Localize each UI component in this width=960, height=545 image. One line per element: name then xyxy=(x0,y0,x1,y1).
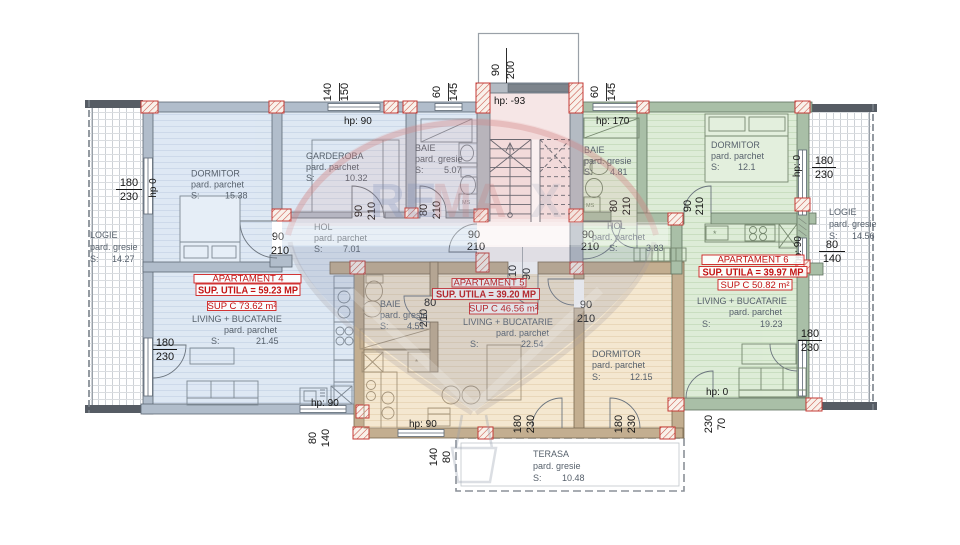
svg-text:TERASA: TERASA xyxy=(533,449,569,459)
svg-text:210: 210 xyxy=(694,197,706,215)
svg-text:140: 140 xyxy=(428,448,440,466)
svg-text:230: 230 xyxy=(525,415,537,433)
svg-text:LIVING + BUCATARIE: LIVING + BUCATARIE xyxy=(192,314,282,324)
svg-text:pard. parchet: pard. parchet xyxy=(711,151,765,161)
svg-text:S:: S: xyxy=(592,372,601,382)
svg-text:14.56: 14.56 xyxy=(852,231,875,241)
svg-text:DORMITOR: DORMITOR xyxy=(711,140,760,150)
svg-text:pard. parchet: pard. parchet xyxy=(592,360,646,370)
svg-text:DORMITOR: DORMITOR xyxy=(191,169,240,179)
svg-text:pard. parchet: pard. parchet xyxy=(729,307,783,317)
svg-text:hp: 90: hp: 90 xyxy=(409,419,437,430)
svg-text:S:: S: xyxy=(306,173,315,183)
svg-text:210: 210 xyxy=(271,245,289,257)
svg-text:230: 230 xyxy=(156,351,174,363)
svg-text:SUP. UTILA = 59.23 MP: SUP. UTILA = 59.23 MP xyxy=(198,285,298,297)
svg-text:90: 90 xyxy=(682,200,694,212)
svg-text:pard. parchet: pard. parchet xyxy=(224,325,278,335)
svg-text:APARTAMENT 4: APARTAMENT 4 xyxy=(212,274,283,285)
svg-text:12.1: 12.1 xyxy=(738,162,756,172)
svg-text:230: 230 xyxy=(626,415,638,433)
svg-text:RE: RE xyxy=(370,175,437,228)
svg-text:SUP. UTILA = 39.97 MP: SUP. UTILA = 39.97 MP xyxy=(703,267,804,279)
svg-text:*: * xyxy=(713,229,717,239)
svg-text:180: 180 xyxy=(801,328,819,340)
svg-text:230: 230 xyxy=(815,169,833,181)
svg-text:MA: MA xyxy=(432,175,507,228)
svg-text:hp: 0: hp: 0 xyxy=(792,154,803,177)
svg-text:LOGIE: LOGIE xyxy=(829,207,857,217)
svg-text:90: 90 xyxy=(490,64,502,76)
svg-text:S:: S: xyxy=(211,336,220,346)
svg-text:S:: S: xyxy=(90,254,99,264)
svg-text:hp: -93: hp: -93 xyxy=(494,96,526,107)
svg-text:145: 145 xyxy=(448,83,460,101)
svg-text:12.15: 12.15 xyxy=(630,372,653,382)
svg-text:pard. gresie: pard. gresie xyxy=(829,219,877,229)
svg-text:60: 60 xyxy=(431,86,443,98)
svg-text:180: 180 xyxy=(512,415,524,433)
svg-text:hp: 170: hp: 170 xyxy=(596,116,630,127)
svg-text:180: 180 xyxy=(815,155,833,167)
svg-text:200: 200 xyxy=(505,61,517,79)
svg-text:S:: S: xyxy=(533,473,542,483)
svg-text:180: 180 xyxy=(120,177,138,189)
svg-text:140: 140 xyxy=(320,429,332,447)
svg-text:80: 80 xyxy=(826,239,838,251)
svg-text:APARTAMENT 6: APARTAMENT 6 xyxy=(717,255,788,266)
svg-text:140: 140 xyxy=(823,253,841,265)
svg-text:180: 180 xyxy=(613,415,625,433)
svg-text:DORMITOR: DORMITOR xyxy=(592,349,641,359)
svg-text:hp 0: hp 0 xyxy=(148,178,159,198)
svg-text:70: 70 xyxy=(716,418,728,430)
svg-text:19.23: 19.23 xyxy=(760,319,783,329)
svg-text:LOGIE: LOGIE xyxy=(90,230,118,240)
svg-text:150: 150 xyxy=(339,83,351,101)
svg-text:hp: 0: hp: 0 xyxy=(706,387,729,398)
svg-text:80: 80 xyxy=(307,432,319,444)
svg-text:pard. gresie: pard. gresie xyxy=(533,461,581,471)
svg-text:S:: S: xyxy=(702,319,711,329)
svg-text:230: 230 xyxy=(801,342,819,354)
svg-text:145: 145 xyxy=(606,83,618,101)
svg-text:S:: S: xyxy=(191,191,200,201)
svg-text:80: 80 xyxy=(441,451,453,463)
svg-text:LIVING + BUCATARIE: LIVING + BUCATARIE xyxy=(697,296,787,306)
svg-text:14.27: 14.27 xyxy=(112,254,135,264)
svg-text:180: 180 xyxy=(156,337,174,349)
svg-text:15.38: 15.38 xyxy=(225,191,248,201)
svg-text:hp: 90: hp: 90 xyxy=(344,116,372,127)
svg-text:hp: 90: hp: 90 xyxy=(311,398,339,409)
svg-text:60: 60 xyxy=(589,86,601,98)
svg-text:pard. parchet: pard. parchet xyxy=(191,180,245,190)
svg-text:X: X xyxy=(530,175,562,228)
svg-text:SUP C 73.62 m²: SUP C 73.62 m² xyxy=(208,301,277,312)
svg-text:SUP C 50.82 m²: SUP C 50.82 m² xyxy=(721,280,790,291)
svg-text:140: 140 xyxy=(322,83,334,101)
svg-text:230: 230 xyxy=(120,191,138,203)
svg-text:S:: S: xyxy=(711,162,720,172)
svg-text:21.45: 21.45 xyxy=(256,336,279,346)
svg-text:10.48: 10.48 xyxy=(562,473,585,483)
svg-text:pard. gresie: pard. gresie xyxy=(90,242,138,252)
svg-text:230: 230 xyxy=(703,415,715,433)
